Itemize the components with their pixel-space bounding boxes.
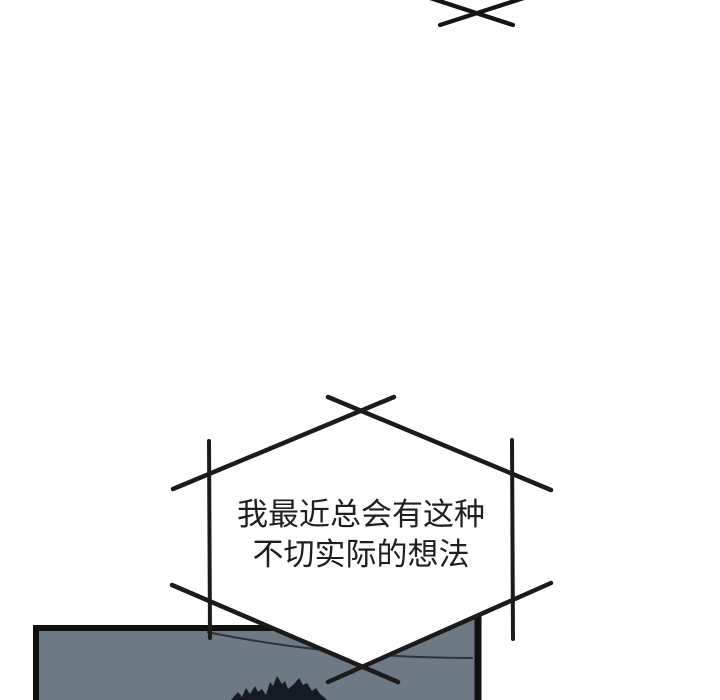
top-bubble-tip	[424, 0, 530, 25]
bubble-text-line-2: 不切实际的想法	[206, 536, 516, 576]
speech-bubble-text: 我最近总会有这种 不切实际的想法	[206, 496, 516, 575]
bubble-text-line-1: 我最近总会有这种	[206, 496, 516, 536]
comic-page: 我最近总会有这种 不切实际的想法	[0, 0, 720, 700]
comic-artwork	[0, 0, 720, 700]
